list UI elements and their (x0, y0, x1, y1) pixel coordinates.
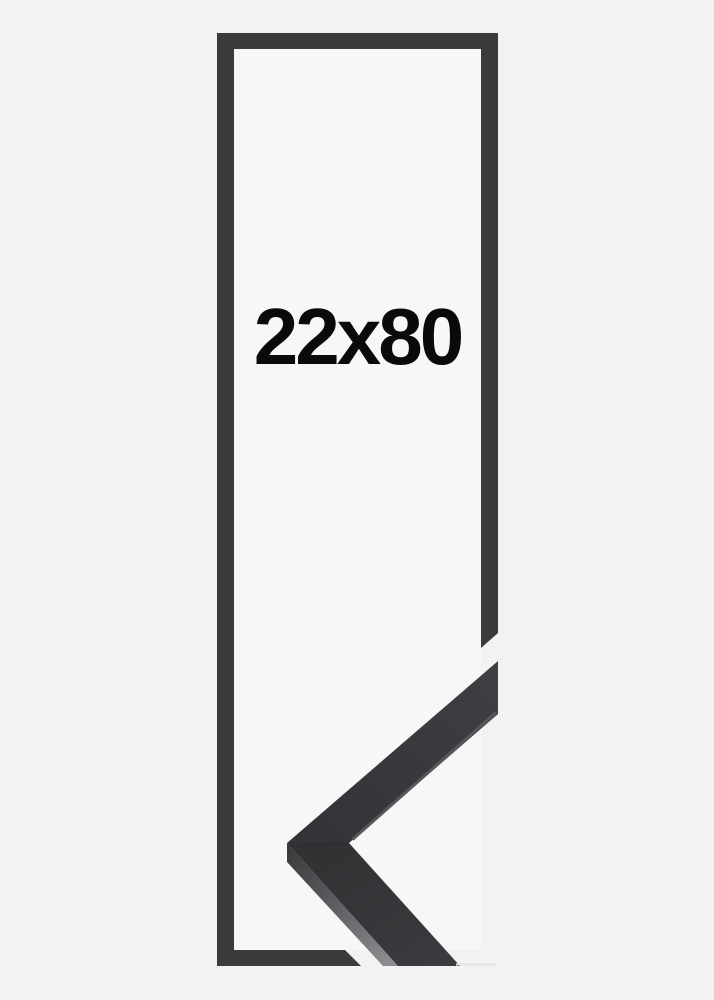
frame-outline-top (217, 33, 498, 49)
product-image: 22x80 (0, 0, 714, 1000)
size-label: 22x80 (234, 297, 481, 377)
frame-outline-bottom (217, 950, 361, 966)
frame-outline-right (481, 33, 498, 648)
frame-illustration (0, 0, 714, 1000)
frame-outline-left (217, 33, 234, 966)
